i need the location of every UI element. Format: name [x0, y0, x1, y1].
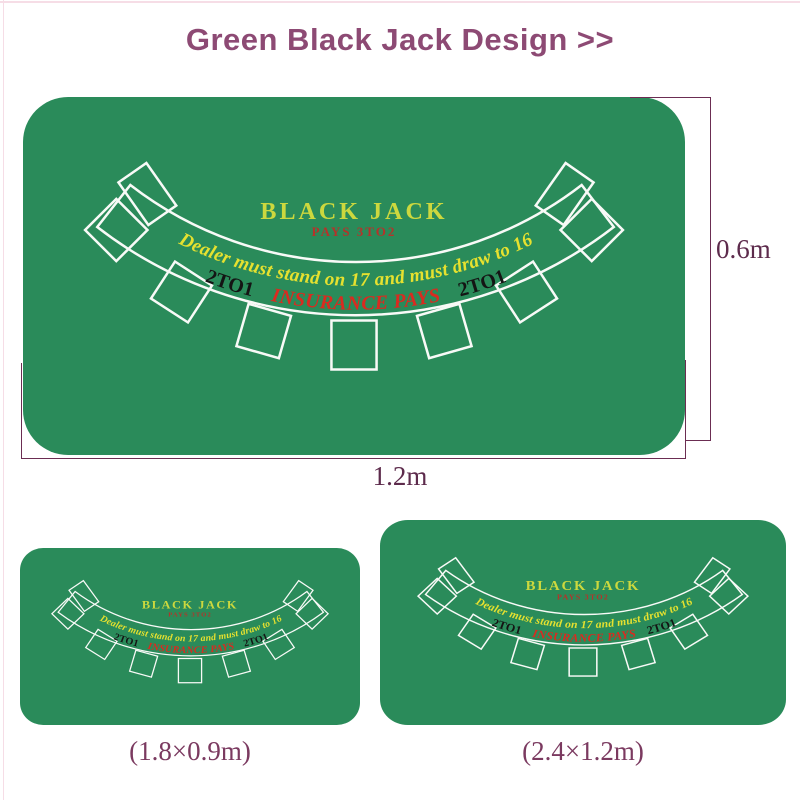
- height-dimension-label: 0.6m: [716, 234, 771, 265]
- main-table-image: [23, 97, 685, 455]
- variant-table-image-large: [380, 520, 786, 725]
- page-border-left: [3, 0, 4, 800]
- height-dimension-line: [710, 97, 711, 441]
- variant-table-image-small: [20, 548, 360, 725]
- width-dimension-right-tick: [685, 360, 686, 459]
- width-dimension-line: [21, 458, 686, 459]
- page-border-top: [0, 1, 800, 3]
- width-dimension-label: 1.2m: [325, 461, 475, 492]
- height-dimension-bottom-tick: [685, 440, 711, 441]
- variant-size-label-large: (2.4×1.2m): [380, 736, 786, 767]
- page-title[interactable]: Green Black Jack Design >>: [0, 22, 800, 58]
- variant-size-label-small: (1.8×0.9m): [20, 736, 360, 767]
- height-dimension-top-tick: [630, 97, 711, 98]
- width-dimension-left-tick: [21, 363, 22, 459]
